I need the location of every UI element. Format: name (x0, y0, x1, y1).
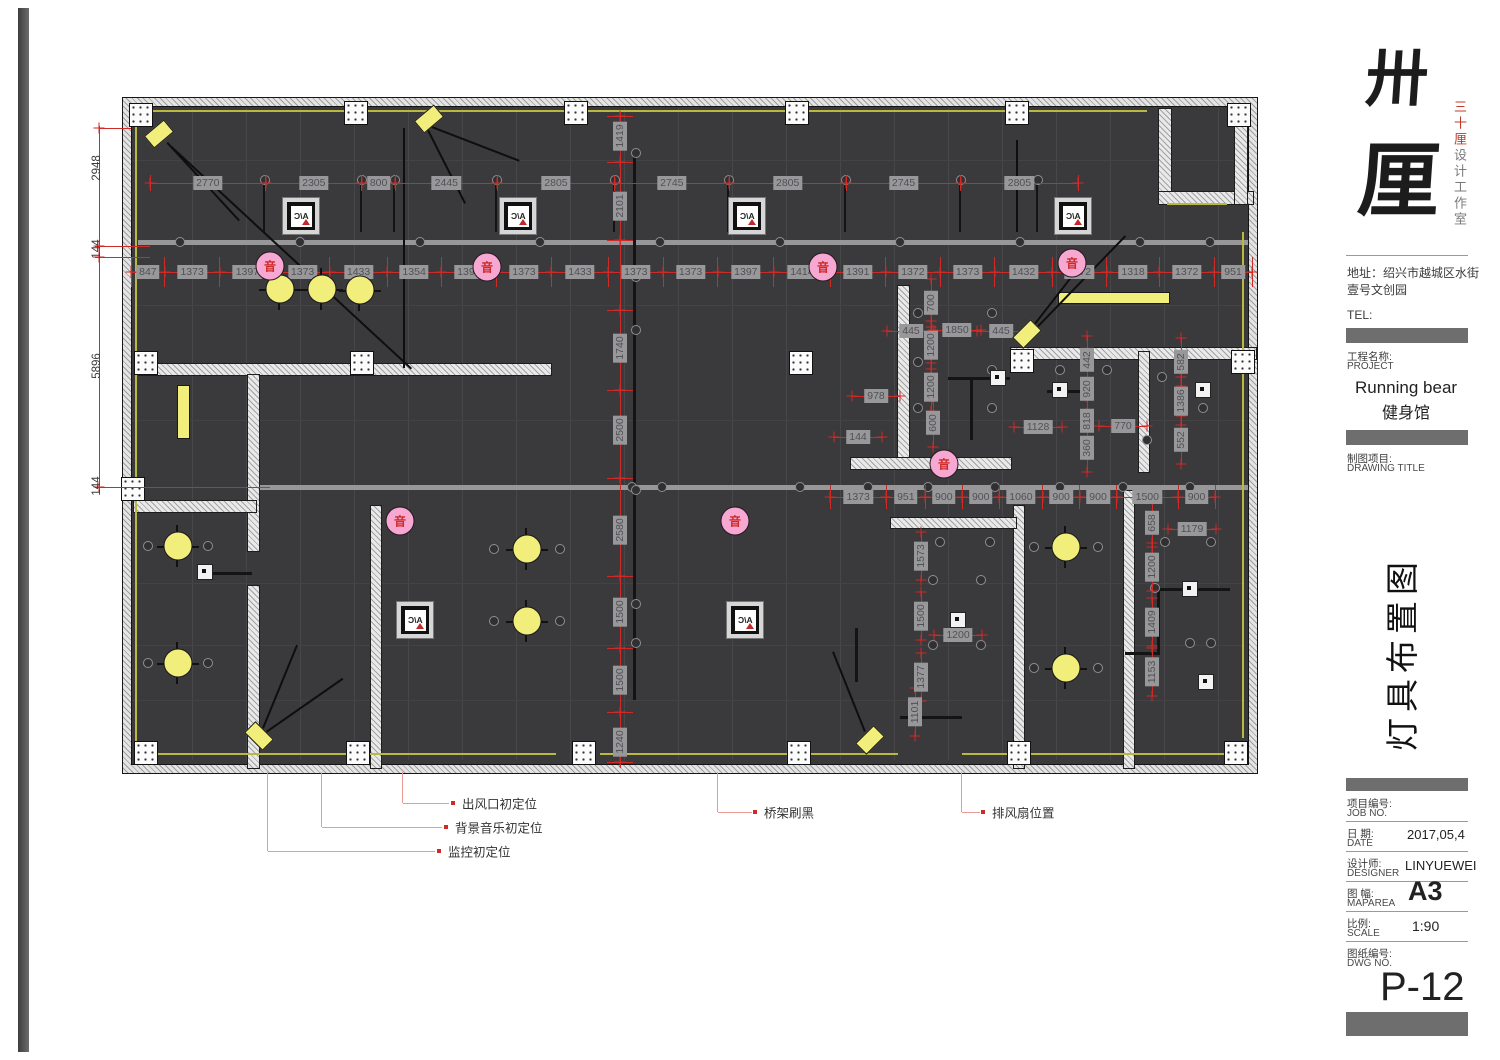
column (1007, 741, 1031, 765)
dim-tag: 445 (989, 324, 1013, 338)
column (1010, 349, 1034, 373)
exhaust-fan (950, 612, 966, 628)
linear-light (1058, 292, 1170, 304)
leader-line (403, 128, 405, 368)
junction-dot (795, 482, 805, 492)
dim-tag: 1373 (953, 265, 982, 279)
dim-tick (126, 267, 137, 278)
project-label-en: PROJECT (1347, 361, 1394, 372)
dim-tick (847, 391, 858, 402)
dim-tick (1163, 524, 1174, 535)
ceiling-grid-line (948, 108, 949, 760)
dim-tick (929, 630, 940, 641)
partition-wall (247, 374, 260, 552)
dim-tag: 900 (1086, 490, 1110, 504)
partition-wall (890, 517, 1017, 529)
dim-tag: 2445 (432, 176, 461, 190)
legend-item: 桥架刷黑 (764, 803, 814, 822)
logo-side-red: 三十厘 (1451, 100, 1466, 148)
ceiling-light (513, 607, 542, 636)
ceiling-light (513, 535, 542, 564)
ceiling-light (346, 276, 375, 305)
column (572, 741, 596, 765)
dim-tag: 582 (1174, 350, 1188, 374)
ceiling-light (1052, 654, 1081, 683)
dim-tick (382, 267, 393, 278)
ceiling-light (164, 532, 193, 561)
junction-dot (143, 541, 153, 551)
partition-wall (370, 505, 382, 769)
designer-value: LINYUEWEI (1405, 858, 1477, 873)
dim-tag: 1200 (924, 372, 938, 401)
ac-unit: A/C (396, 601, 434, 639)
dim-tick (159, 267, 170, 278)
dim-tag: 2770 (193, 176, 222, 190)
dim-tick (916, 575, 927, 586)
dim-tick (390, 178, 401, 189)
ac-unit-frame: A/C (401, 606, 429, 634)
ac-arrow-icon (416, 623, 424, 629)
junction-dot (913, 403, 923, 413)
junction-dot (143, 658, 153, 668)
dim-tag: 1101 (908, 698, 922, 727)
column (789, 351, 813, 375)
dim-tick (214, 267, 225, 278)
dim-tag: 1373 (676, 265, 705, 279)
dim-tick (356, 178, 367, 189)
junction-dot (1093, 663, 1103, 673)
dim-tick (829, 432, 840, 443)
dim-tag: 144 (846, 430, 870, 444)
junction-dot (489, 616, 499, 626)
dim-tick (609, 178, 620, 189)
exhaust-fan (1052, 382, 1068, 398)
section-bar (1346, 328, 1468, 343)
dim-tick (1142, 421, 1153, 432)
sound-marker: 音 (473, 253, 502, 282)
dim-tick (1094, 421, 1105, 432)
job-label-en: JOB NO. (1347, 808, 1387, 819)
legend-leader-line (403, 803, 449, 804)
legend-leader-line (717, 772, 718, 812)
legend-item: 监控初定位 (448, 842, 511, 861)
partition-wall (1123, 490, 1135, 769)
junction-dot (1160, 537, 1170, 547)
dim-tag: 1372 (898, 265, 927, 279)
dim-tick (615, 571, 626, 582)
tel-label: TEL: (1347, 308, 1372, 322)
legend-leader-line (961, 772, 962, 812)
dim-tick (877, 432, 888, 443)
ceiling-grid-line (133, 645, 1245, 646)
dim-tag: 1373 (509, 265, 538, 279)
sound-marker: 音 (721, 507, 750, 536)
cable-tray (855, 628, 858, 682)
dim-tick (492, 178, 503, 189)
dim-tag: 1373 (843, 490, 872, 504)
dim-text: 2948 (91, 155, 103, 181)
dim-tag: 2500 (613, 415, 627, 444)
scale-label-en: SCALE (1347, 928, 1380, 939)
dim-tag: 900 (1049, 490, 1073, 504)
column (785, 101, 809, 125)
logo-side-gray: 设计工作室 (1451, 148, 1466, 228)
hanger-line (844, 185, 846, 232)
column (1231, 350, 1255, 374)
dim-tick (916, 527, 927, 538)
junction-dot (935, 537, 945, 547)
dim-tick (1147, 643, 1158, 654)
dim-tick (712, 267, 723, 278)
junction-dot (175, 237, 185, 247)
dim-tag: 1128 (1024, 420, 1053, 434)
dim-tag: 951 (894, 490, 918, 504)
dim-tag: 1391 (843, 265, 872, 279)
legend-bullet (451, 801, 455, 805)
junction-dot (1198, 403, 1208, 413)
dim-tick (895, 391, 906, 402)
junction-dot (1118, 482, 1128, 492)
partition-wall (1010, 347, 1257, 360)
partition-wall (1013, 505, 1025, 769)
dim-tick (825, 492, 836, 503)
legend-bullet (981, 810, 985, 814)
dim-tag: 2101 (613, 191, 627, 220)
dim-tick (880, 267, 891, 278)
dim-tick (1147, 593, 1158, 604)
dim-tick (1082, 331, 1093, 342)
junction-dot (987, 403, 997, 413)
ceiling-grid-line (786, 108, 787, 760)
ac-unit-face: A/C (405, 610, 426, 631)
junction-dot (555, 544, 565, 554)
dim-tag: 2305 (299, 176, 328, 190)
partition-wall (897, 285, 910, 463)
legend-bullet (753, 810, 757, 814)
dim-tick (603, 267, 614, 278)
junction-dot (985, 537, 995, 547)
dim-tick (1047, 267, 1058, 278)
dim-tick (977, 630, 988, 641)
dim-text: 144 (91, 239, 103, 258)
legend-leader-line (268, 851, 435, 852)
ac-arrow-icon (302, 219, 310, 225)
dim-tick (926, 316, 937, 327)
sound-marker: 音 (256, 252, 285, 281)
dim-text: 5896 (91, 353, 103, 379)
dim-tag: 600 (926, 411, 940, 435)
exhaust-fan (1198, 674, 1214, 690)
dim-tag: 442 (1080, 348, 1094, 372)
ceiling-grid-line (354, 108, 355, 760)
dim-text: 144 (91, 476, 103, 495)
dim-tick (1209, 267, 1220, 278)
logo-character-1: 卅 (1364, 48, 1430, 110)
column (344, 101, 368, 125)
dim-tick (882, 326, 893, 337)
partition-wall (1138, 351, 1150, 473)
ceiling-grid-line (133, 700, 1245, 701)
ceiling-grid-line (1164, 108, 1165, 760)
dim-tag: 1433 (565, 265, 594, 279)
junction-dot (203, 658, 213, 668)
dim-tag: 900 (932, 490, 956, 504)
junction-dot (489, 544, 499, 554)
sound-marker: 音 (1058, 249, 1087, 278)
ac-arrow-icon (746, 623, 754, 629)
legend-leader-line (402, 772, 403, 803)
dim-tag: 1200 (924, 330, 938, 359)
dim-tag: 1318 (1118, 265, 1147, 279)
dim-tick (260, 178, 271, 189)
dim-extension-line (99, 128, 131, 129)
dim-tag: 978 (864, 389, 888, 403)
ac-unit-frame: A/C (733, 202, 761, 230)
dim-tick (615, 757, 626, 768)
project-name-en: Running bear (1355, 378, 1457, 398)
legend-leader-line (962, 812, 980, 813)
ceiling-grid-line (408, 108, 409, 760)
divider (1346, 255, 1468, 256)
dim-tick (1154, 267, 1165, 278)
exhaust-fan (1195, 382, 1211, 398)
hanger-line (959, 185, 961, 232)
dim-tick (1247, 267, 1258, 278)
led-strip (1167, 203, 1227, 205)
dim-tag: 1419 (613, 121, 627, 150)
dim-tag: 818 (1080, 409, 1094, 433)
dim-tick (1176, 333, 1187, 344)
ceiling-light (308, 275, 337, 304)
junction-dot (631, 638, 641, 648)
ac-unit-frame: A/C (504, 202, 532, 230)
dim-extension-line (95, 487, 270, 488)
ceiling-grid-line (678, 108, 679, 760)
dim-tick (1210, 492, 1221, 503)
junction-dot (1015, 237, 1025, 247)
dim-chain-line (99, 126, 100, 492)
junction-dot (631, 485, 641, 495)
junction-dot (913, 308, 923, 318)
dim-tag: 1200 (1145, 552, 1159, 581)
dim-tag: 900 (1185, 490, 1209, 504)
dim-tag: 2805 (773, 176, 802, 190)
address-line2: 壹号文创园 (1347, 281, 1407, 298)
junction-dot (1029, 663, 1039, 673)
divider (1346, 821, 1468, 822)
exhaust-fan (197, 564, 213, 580)
divider (1346, 911, 1468, 912)
dim-tick (920, 492, 931, 503)
dim-tag: 552 (1174, 428, 1188, 452)
legend-leader-line (322, 827, 442, 828)
junction-dot (555, 616, 565, 626)
dim-tag: 1573 (914, 541, 928, 570)
dim-tick (1057, 422, 1068, 433)
junction-dot (1033, 175, 1043, 185)
dim-tick (916, 587, 927, 598)
dim-tick (615, 385, 626, 396)
ac-arrow-icon (748, 219, 756, 225)
legend-item: 背景音乐初定位 (455, 818, 543, 837)
dim-tick (658, 267, 669, 278)
junction-dot (535, 237, 545, 247)
floor-plan: 2770230580024452805274528052745280584713… (0, 0, 1500, 1060)
ceiling-light (1052, 533, 1081, 562)
junction-dot (1205, 237, 1215, 247)
dim-tick (436, 267, 447, 278)
ac-unit: A/C (1054, 197, 1092, 235)
dim-tag: 1500 (1133, 490, 1162, 504)
sound-marker: 音 (809, 253, 838, 282)
dim-tag: 700 (924, 291, 938, 315)
column (1005, 101, 1029, 125)
ac-unit-face: A/C (508, 206, 529, 227)
dim-tick (1009, 422, 1020, 433)
section-bar (1346, 1012, 1468, 1036)
column (134, 741, 158, 765)
dim-tag: 770 (1111, 419, 1135, 433)
dim-extension-line (95, 246, 150, 247)
designer-label-en: DESIGNER (1347, 868, 1399, 879)
dim-tick (145, 178, 156, 189)
cable-tray (210, 572, 252, 575)
dim-tag: 1850 (942, 323, 971, 337)
drawing-sheet: 2770230580024452805274528052745280584713… (0, 0, 1500, 1060)
ceiling-grid-line (570, 108, 571, 760)
ceiling-grid-line (133, 305, 1245, 306)
drawing-title-label-en: DRAWING TITLE (1347, 463, 1425, 474)
dim-tag: 1153 (1145, 658, 1159, 687)
junction-dot (1157, 372, 1167, 382)
ac-unit-face: A/C (735, 610, 756, 631)
dim-tag: 1500 (613, 665, 627, 694)
legend-leader-line (267, 772, 268, 851)
legend-bullet (444, 825, 448, 829)
dim-tick (1211, 524, 1222, 535)
dim-tick (615, 157, 626, 168)
scale-value: 1:90 (1412, 918, 1439, 934)
hanger-line (1036, 185, 1038, 232)
junction-dot (1185, 638, 1195, 648)
dim-tick (615, 473, 626, 484)
junction-dot (1135, 237, 1145, 247)
dim-tag: 1500 (914, 601, 928, 630)
legend-item: 排风扇位置 (992, 803, 1055, 822)
dim-tick (1073, 178, 1084, 189)
dim-tag: 1409 (1145, 607, 1159, 636)
dim-tick (1173, 492, 1184, 503)
ac-unit-frame: A/C (287, 202, 315, 230)
hanger-line (495, 185, 497, 232)
led-strip (150, 110, 1147, 112)
ac-arrow-icon (1074, 219, 1082, 225)
legend-item: 出风口初定位 (462, 794, 537, 813)
column (134, 351, 158, 375)
legend-leader-line (718, 812, 752, 813)
hanger-line (263, 185, 265, 232)
dim-tag: 1354 (399, 265, 428, 279)
junction-dot (1206, 638, 1216, 648)
column (564, 101, 588, 125)
junction-dot (976, 640, 986, 650)
dim-tick (1074, 492, 1085, 503)
junction-dot (631, 325, 641, 335)
led-strip (1242, 232, 1244, 738)
junction-dot (655, 237, 665, 247)
junction-dot (1206, 537, 1216, 547)
dim-tick (1101, 267, 1112, 278)
dim-tag: 1179 (1178, 522, 1207, 536)
dim-tag: 800 (367, 176, 391, 190)
dim-tag: 2745 (889, 176, 918, 190)
dim-tag: 1740 (613, 333, 627, 362)
dim-tag: 1377 (914, 662, 928, 691)
dim-tick (1037, 492, 1048, 503)
logo-character-2: 厘 (1355, 140, 1443, 222)
junction-dot (987, 308, 997, 318)
junction-dot (775, 237, 785, 247)
ac-unit-face: A/C (737, 206, 758, 227)
ceiling-grid-line (1002, 108, 1003, 760)
dim-tag: 658 (1145, 511, 1159, 535)
column (787, 741, 811, 765)
ac-unit-face: A/C (291, 206, 312, 227)
dim-tick (1147, 691, 1158, 702)
column (1224, 741, 1248, 765)
dim-tick (1147, 538, 1158, 549)
junction-dot (1093, 542, 1103, 552)
dim-tag: 1240 (613, 727, 627, 756)
linear-light (177, 385, 190, 439)
junction-dot (631, 599, 641, 609)
dim-tick (1176, 459, 1187, 470)
junction-dot (631, 148, 641, 158)
section-bar (1346, 778, 1468, 791)
dim-tag: 900 (969, 490, 993, 504)
dim-tick (916, 648, 927, 659)
dwg-number-value: P-12 (1380, 965, 1465, 1010)
dim-tick (615, 235, 626, 246)
dim-tag: 1373 (177, 265, 206, 279)
column (346, 741, 370, 765)
divider (1346, 881, 1468, 882)
cable-tray (970, 377, 973, 440)
ac-unit: A/C (499, 197, 537, 235)
ac-unit-face: A/C (1063, 206, 1084, 227)
dim-tag: 847 (136, 265, 160, 279)
column (1227, 103, 1251, 127)
exhaust-fan (990, 370, 1006, 386)
partition-wall (133, 500, 257, 513)
ac-unit-frame: A/C (1059, 202, 1087, 230)
dim-tag: 1373 (621, 265, 650, 279)
date-label-en: DATE (1347, 838, 1373, 849)
legend-bullet (437, 849, 441, 853)
dim-tick (841, 178, 852, 189)
maparea-value: A3 (1408, 876, 1443, 907)
ceiling-grid-line (894, 108, 895, 760)
dim-tag: 2580 (613, 515, 627, 544)
dim-tick (546, 267, 557, 278)
dim-tick (1111, 492, 1122, 503)
junction-dot (1102, 365, 1112, 375)
junction-dot (928, 640, 938, 650)
dim-tick (957, 492, 968, 503)
led-strip (962, 753, 1244, 755)
dim-tag: 2745 (657, 176, 686, 190)
ac-unit: A/C (726, 601, 764, 639)
